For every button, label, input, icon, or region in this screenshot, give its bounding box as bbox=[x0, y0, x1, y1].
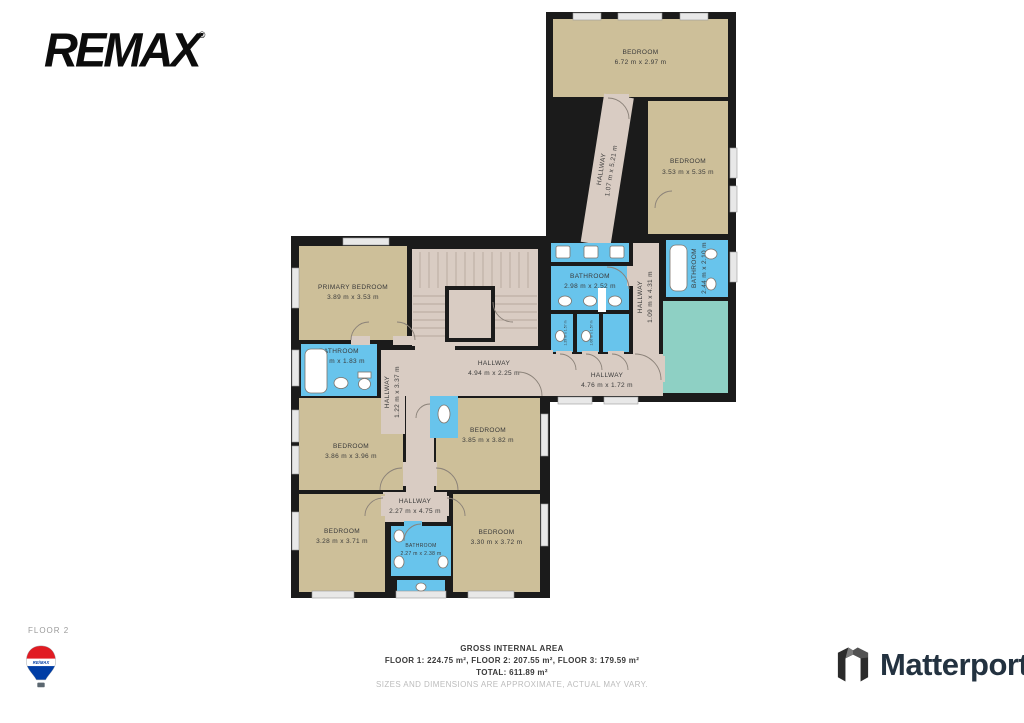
room-dims: 2.27 m x 4.75 m bbox=[389, 507, 441, 517]
room-bedroom-right: BEDROOM3.53 m x 5.35 m bbox=[648, 101, 728, 234]
stall-mid-dims: 1.06 m x 1.57 m bbox=[589, 320, 594, 345]
room-dims: 4.76 m x 1.72 m bbox=[581, 381, 633, 391]
room-bedroom-bot-left: BEDROOM3.28 m x 3.71 m bbox=[299, 494, 385, 592]
room-name: BEDROOM bbox=[325, 442, 377, 452]
room-name: BEDROOM bbox=[471, 528, 523, 538]
room-name: BEDROOM bbox=[462, 426, 514, 436]
room-name: HALLWAY bbox=[389, 497, 441, 507]
room-hallway-main: HALLWAY4.94 m x 2.25 m bbox=[381, 350, 553, 396]
room-wc-strip-top bbox=[551, 243, 629, 262]
floor-label: FLOOR 2 bbox=[28, 626, 69, 635]
room-wc-bottom-strip bbox=[397, 580, 445, 594]
room-dims: 2.44 m x 2.10 m bbox=[700, 242, 710, 294]
room-dims: 4.94 m x 2.25 m bbox=[468, 369, 520, 379]
room-stall-mid bbox=[577, 314, 599, 352]
stall-left-dims: 1.29 m x 1.57 m bbox=[563, 320, 568, 345]
room-dims: 1.22 m x 3.37 m bbox=[393, 366, 403, 418]
room-bathroom-mid: BATHROOM2.98 m x 2.52 m bbox=[551, 266, 629, 310]
room-name: BATHROOM bbox=[313, 347, 365, 357]
room-primary-bedroom: PRIMARY BEDROOM3.89 m x 3.53 m bbox=[299, 246, 407, 340]
room-stall-left bbox=[551, 314, 573, 352]
room-hallway-bottom: HALLWAY4.76 m x 1.72 m bbox=[551, 354, 663, 396]
matterport-logo: Matterport bbox=[836, 646, 1024, 684]
room-name: HALLWAY bbox=[581, 371, 633, 381]
room-name: BEDROOM bbox=[662, 157, 714, 167]
room-dims: 3.53 m x 5.35 m bbox=[662, 168, 714, 178]
bathroom-right-label: BATHROOM2.44 m x 2.10 m bbox=[690, 242, 710, 294]
room-name: PRIMARY BEDROOM bbox=[318, 283, 388, 293]
hallway-122-label: HALLWAY1.22 m x 3.37 m bbox=[383, 366, 403, 418]
room-name: HALLWAY bbox=[383, 366, 393, 418]
floor-plan: BEDROOM6.72 m x 2.97 m BEDROOM3.53 m x 5… bbox=[0, 0, 1024, 723]
room-dims: 3.30 m x 3.72 m bbox=[471, 538, 523, 548]
room-deck bbox=[663, 301, 728, 393]
room-dims: 3.89 m x 3.53 m bbox=[318, 293, 388, 303]
room-hallway-227: HALLWAY2.27 m x 4.75 m bbox=[383, 492, 447, 522]
room-dims: 6.72 m x 2.97 m bbox=[615, 58, 667, 68]
room-stall-right bbox=[603, 314, 629, 352]
room-name: BATHROOM bbox=[564, 272, 616, 282]
room-bedroom-top: BEDROOM6.72 m x 2.97 m bbox=[553, 19, 728, 97]
room-dims: 2.27 m x 2.38 m bbox=[400, 551, 441, 559]
room-wc-small bbox=[430, 396, 458, 438]
floorplan-page: REMAX® BEDROOM6.72 m x 2.97 m BEDROOM3.5… bbox=[0, 0, 1024, 723]
room-name: BATHROOM bbox=[400, 543, 441, 551]
matterport-icon bbox=[836, 646, 870, 684]
room-name: BATHROOM bbox=[690, 242, 700, 294]
room-bathroom-left: BATHROOM2.69 m x 1.83 m bbox=[301, 344, 377, 396]
room-bathroom-bottom: BATHROOM2.27 m x 2.38 m bbox=[391, 526, 451, 576]
room-name: BEDROOM bbox=[615, 48, 667, 58]
hallway-vertical-label: HALLWAY1.09 m x 4.31 m bbox=[636, 271, 656, 323]
room-bedroom-bot-right: BEDROOM3.30 m x 3.72 m bbox=[453, 494, 540, 592]
room-dims: 2.69 m x 1.83 m bbox=[313, 357, 365, 367]
room-dims: 3.86 m x 3.96 m bbox=[325, 452, 377, 462]
room-dims: 3.85 m x 3.82 m bbox=[462, 436, 514, 446]
stairs-area bbox=[412, 249, 538, 346]
room-name: BEDROOM bbox=[316, 527, 368, 537]
room-dims: 1.09 m x 4.31 m bbox=[646, 271, 656, 323]
room-dims: 3.28 m x 3.71 m bbox=[316, 537, 368, 547]
room-name: HALLWAY bbox=[636, 271, 646, 323]
matterport-label: Matterport bbox=[880, 647, 1024, 683]
room-dims: 2.98 m x 2.52 m bbox=[564, 282, 616, 292]
room-name: HALLWAY bbox=[468, 359, 520, 369]
